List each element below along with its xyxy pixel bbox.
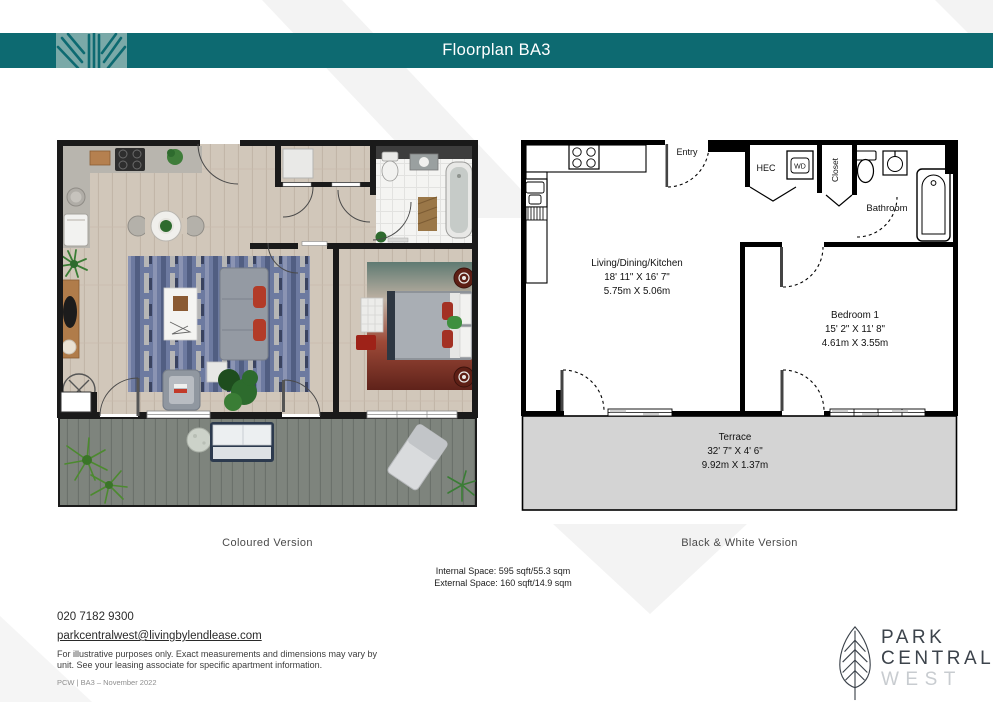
page-title: Floorplan BA3 xyxy=(0,33,993,68)
logo-west: WEST xyxy=(881,669,993,690)
header-bar: Floorplan BA3 xyxy=(0,33,993,68)
bw-floor xyxy=(524,142,955,414)
space-summary: Internal Space: 595 sqft/55.3 sqm Extern… xyxy=(340,566,666,589)
phone-number: 020 7182 9300 xyxy=(57,611,377,623)
coloured-terrace xyxy=(59,418,476,506)
disclaimer-line1: For illustrative purposes only. Exact me… xyxy=(57,649,377,660)
coloured-coffee-table xyxy=(164,288,197,340)
coloured-version-caption: Coloured Version xyxy=(57,537,478,549)
document-reference: PCW | BA3 – November 2022 xyxy=(57,678,377,687)
park-central-west-logo: PARK CENTRAL WEST xyxy=(836,621,993,701)
coloured-floorplan xyxy=(57,140,478,510)
bedroom-metric: 4.61m X 3.55m xyxy=(822,338,888,349)
external-space: External Space: 160 sqft/14.9 sqm xyxy=(340,578,666,590)
bw-floorplan: Entry HEC WD Closet Bathroom Living/Dini… xyxy=(521,139,958,512)
leaf-icon xyxy=(836,625,874,701)
email-link[interactable]: parkcentralwest@livingbylendlease.com xyxy=(57,630,262,642)
coloured-bathroom xyxy=(376,146,473,243)
coloured-armchair xyxy=(163,370,200,410)
logo-park: PARK xyxy=(881,627,993,648)
bedroom-imperial: 15' 2" X 11' 8" xyxy=(825,324,886,335)
living-name: Living/Dining/Kitchen xyxy=(591,258,683,269)
coloured-bedroom xyxy=(356,262,474,390)
logo-wordmark: PARK CENTRAL WEST xyxy=(881,627,993,690)
wd-label: WD xyxy=(794,164,806,171)
bathroom-label: Bathroom xyxy=(866,203,907,214)
entry-label: Entry xyxy=(676,147,698,157)
terrace-metric: 9.92m X 1.37m xyxy=(702,460,768,471)
living-metric: 5.75m X 5.06m xyxy=(604,286,670,297)
bw-version-caption: Black & White Version xyxy=(521,537,958,549)
living-imperial: 18' 11" X 16' 7" xyxy=(604,272,670,283)
logo-central: CENTRAL xyxy=(881,648,993,669)
terrace-imperial: 32' 7" X 4' 6" xyxy=(707,446,763,457)
closet-label: Closet xyxy=(830,157,840,182)
contact-block: 020 7182 9300 parkcentralwest@livingbyle… xyxy=(57,611,377,687)
bedroom-name: Bedroom 1 xyxy=(831,310,879,321)
hec-label: HEC xyxy=(756,163,776,173)
internal-space: Internal Space: 595 sqft/55.3 sqm xyxy=(340,566,666,578)
floorplan-page: Floorplan BA3 xyxy=(0,0,993,702)
terrace-name: Terrace xyxy=(719,432,752,443)
disclaimer-line2: unit. See your leasing associate for spe… xyxy=(57,660,377,671)
